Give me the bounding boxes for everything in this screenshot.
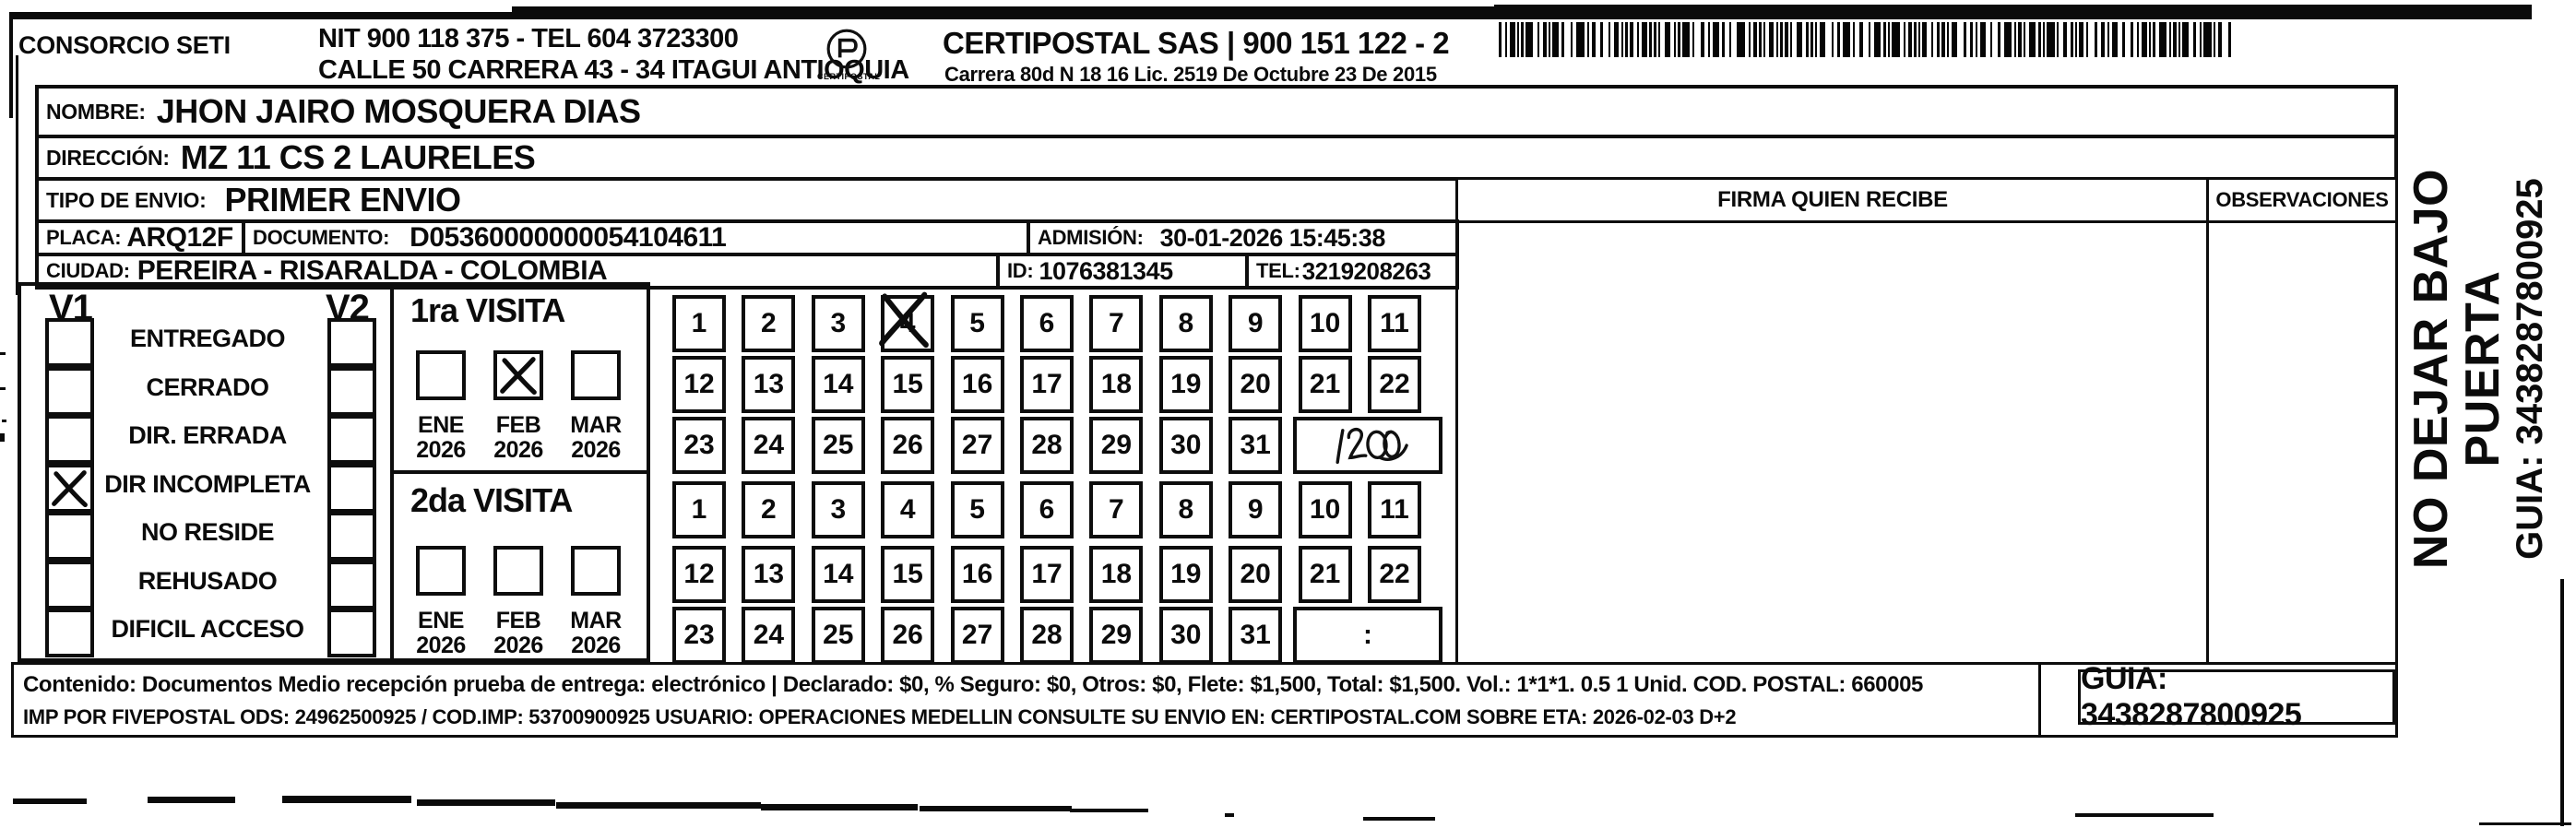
side-guia-text: GUIA: 3438287800925 <box>2509 83 2551 655</box>
visit1-day-10: 10 <box>1299 295 1352 352</box>
barcode-bar <box>1869 22 1870 57</box>
barcode-bar <box>1505 22 1507 57</box>
direccion-label: DIRECCIÓN: <box>39 146 170 171</box>
scan-artifact <box>0 433 5 442</box>
visit2-day-11: 11 <box>1368 481 1421 538</box>
visit1-day-11: 11 <box>1368 295 1421 352</box>
documento-value: D05360000000054104611 <box>410 222 726 254</box>
barcode-bar <box>1549 22 1550 57</box>
visit1-day-13: 13 <box>742 356 795 413</box>
barcode <box>1499 22 2237 57</box>
visit1-day-17: 17 <box>1020 356 1074 413</box>
row-direccion: DIRECCIÓN: MZ 11 CS 2 LAURELES <box>35 135 2398 181</box>
barcode-bar <box>1785 22 1788 57</box>
barcode-bar <box>1537 22 1539 57</box>
barcode-bar <box>1820 22 1825 57</box>
status-entregado-v2-checkbox <box>327 318 376 367</box>
visit1-day-14: 14 <box>812 356 865 413</box>
barcode-bar <box>1576 22 1585 57</box>
barcode-bar <box>2063 22 2067 57</box>
visit2-day-18: 18 <box>1089 546 1143 603</box>
barcode-bar <box>2029 22 2036 57</box>
side-warning-block: NO DEJAR BAJO PUERTA GUIA: 3438287800925 <box>2405 83 2507 655</box>
barcode-bar <box>2038 22 2041 57</box>
barcode-bar <box>1658 22 1660 57</box>
visit2-day-3: 3 <box>812 481 865 538</box>
barcode-bar <box>2075 22 2077 57</box>
barcode-bar <box>2112 22 2118 57</box>
visit1-day-18: 18 <box>1089 356 1143 413</box>
admision-value: 30-01-2026 15:45:38 <box>1160 224 1385 253</box>
visit1-day-20: 20 <box>1229 356 1282 413</box>
scan-artifact <box>761 804 918 810</box>
barcode-bar <box>1976 22 1977 57</box>
scan-artifact <box>2 420 6 422</box>
visit2-day-15: 15 <box>881 546 934 603</box>
barcode-bar <box>1642 22 1647 57</box>
visit1-panel: 1ra VISITA ENE2026FEB2026MAR2026 <box>390 282 650 474</box>
barcode-bar <box>1952 22 1957 57</box>
barcode-bar <box>2173 22 2177 57</box>
barcode-bar <box>1722 22 1725 57</box>
barcode-bar <box>2149 22 2151 57</box>
side-warning-text: NO DEJAR BAJO PUERTA <box>2405 83 2509 655</box>
visit2-day-16: 16 <box>951 546 1004 603</box>
barcode-bar <box>2095 22 2097 57</box>
barcode-bar <box>1753 22 1757 57</box>
visit2-month-ene-label: ENE2026 <box>403 609 479 658</box>
barcode-bar <box>1980 22 1986 57</box>
barcode-bar <box>2142 22 2147 57</box>
barcode-bar <box>1625 22 1628 57</box>
barcode-bar <box>2122 22 2125 57</box>
barcode-bar <box>2153 22 2155 57</box>
barcode-bar <box>2200 22 2202 57</box>
status-cerrado-label: CERRADO <box>91 367 324 408</box>
barcode-bar <box>1832 22 1834 57</box>
barcode-bar <box>1600 22 1603 57</box>
visit1-day-28: 28 <box>1020 417 1074 474</box>
status-no-reside-label: NO RESIDE <box>91 512 324 553</box>
barcode-bar <box>2203 22 2212 57</box>
barcode-bar <box>2137 22 2139 57</box>
visit1-day-8: 8 <box>1159 295 1213 352</box>
barcode-bar <box>1806 22 1809 57</box>
barcode-bar <box>1990 22 1992 57</box>
id-value: 1076381345 <box>1039 257 1172 286</box>
barcode-bar <box>1998 22 2000 57</box>
barcode-bar <box>1797 22 1802 57</box>
visit2-day-19: 19 <box>1159 546 1213 603</box>
status-dificil-acceso-v2-checkbox <box>327 609 376 657</box>
scan-artifact <box>148 797 235 803</box>
visit1-day-30: 30 <box>1159 417 1213 474</box>
visit2-day-29: 29 <box>1089 607 1143 664</box>
barcode-bar <box>1892 22 1900 57</box>
barcode-bar <box>1649 22 1652 57</box>
row-tipo-envio: TIPO DE ENVIO: PRIMER ENVIO <box>35 177 1459 223</box>
scan-artifact <box>1363 817 1435 821</box>
barcode-bar <box>1769 22 1774 57</box>
barcode-bar <box>1682 22 1690 57</box>
visit1-day-29: 29 <box>1089 417 1143 474</box>
visit1-day-16: 16 <box>951 356 1004 413</box>
visit2-day-24: 24 <box>742 607 795 664</box>
documento-label: DOCUMENTO: <box>245 226 389 250</box>
barcode-bar <box>1517 22 1519 57</box>
status-dir-errada-v1-checkbox <box>45 415 94 464</box>
guia-box-value: GUIA: 3438287800925 <box>2081 661 2392 733</box>
barcode-bar <box>1918 22 1920 57</box>
barcode-bar <box>1759 22 1762 57</box>
status-entregado-v1-checkbox <box>45 318 94 367</box>
barcode-bar <box>2047 22 2055 57</box>
barcode-bar <box>1561 22 1564 57</box>
visit2-day-28: 28 <box>1020 607 1074 664</box>
barcode-bar <box>1859 22 1863 57</box>
tipo-envio-value: PRIMER ENVIO <box>224 181 460 219</box>
barcode-bar <box>2004 22 2012 57</box>
barcode-bar <box>1853 22 1855 57</box>
barcode-bar <box>1654 22 1656 57</box>
status-dir-errada-v2-checkbox <box>327 415 376 464</box>
barcode-bar <box>2014 22 2016 57</box>
footer-line2: IMP POR FIVEPOSTAL ODS: 24962500925 / CO… <box>23 705 1736 729</box>
visit1-title: 1ra VISITA <box>410 291 564 330</box>
visit2-title: 2da VISITA <box>410 481 572 520</box>
visit2-day-26: 26 <box>881 607 934 664</box>
visit1-month-ene-checkbox <box>416 350 466 400</box>
visit1-time-box <box>1293 417 1442 474</box>
visit1-day-22: 22 <box>1368 356 1421 413</box>
barcode-bar <box>1904 22 1905 57</box>
barcode-bar <box>1874 22 1881 57</box>
barcode-bar <box>1815 22 1817 57</box>
barcode-bar <box>2131 22 2133 57</box>
barcode-bar <box>2018 22 2022 57</box>
barcode-bar <box>1729 22 1731 57</box>
barcode-bar <box>2057 22 2059 57</box>
visit1-month-mar-checkbox <box>571 350 621 400</box>
barcode-bar <box>1621 22 1623 57</box>
barcode-bar <box>1947 22 1949 57</box>
visit2-day-4: 4 <box>881 481 934 538</box>
barcode-bar <box>2169 22 2171 57</box>
visit1-day-19: 19 <box>1159 356 1213 413</box>
row-placa: PLACA: ARQ12F <box>35 219 245 256</box>
barcode-bar <box>1776 22 1778 57</box>
visit1-day-23: 23 <box>672 417 726 474</box>
visit1-day-21: 21 <box>1299 356 1352 413</box>
status-rehusado-v1-checkbox <box>45 561 94 609</box>
visit1-day-31: 31 <box>1229 417 1282 474</box>
guia-box: GUIA: 3438287800925 <box>2078 669 2395 725</box>
visit1-day-9: 9 <box>1229 295 1282 352</box>
scan-artifact <box>0 387 6 390</box>
visit2-day-12: 12 <box>672 546 726 603</box>
status-dificil-acceso-v1-checkbox <box>45 609 94 657</box>
visit1-month-ene: ENE2026 <box>403 350 479 463</box>
visit2-day-31: 31 <box>1229 607 1282 664</box>
visit2-month-ene: ENE2026 <box>403 546 479 658</box>
barcode-bar <box>2182 22 2189 57</box>
row-admision: ADMISIÓN: 30-01-2026 15:45:38 <box>1027 219 1459 256</box>
barcode-bar <box>2193 22 2196 57</box>
visit2-month-feb: FEB2026 <box>481 546 556 658</box>
barcode-bar <box>2086 22 2088 57</box>
barcode-bar <box>2159 22 2166 57</box>
id-label: ID: <box>1000 259 1033 283</box>
barcode-bar <box>1678 22 1680 57</box>
status-cerrado-v2-checkbox <box>327 367 376 416</box>
top-border-right <box>1494 5 2532 18</box>
status-rehusado-label: REHUSADO <box>91 561 324 602</box>
certipostal-logo-icon <box>825 28 868 70</box>
visit2-day-2: 2 <box>742 481 795 538</box>
barcode-bar <box>1701 22 1704 57</box>
visit1-day-1: 1 <box>672 295 726 352</box>
barcode-bar <box>1637 22 1639 57</box>
visit1-month-feb-checkbox <box>493 350 543 400</box>
barcode-bar <box>1888 22 1890 57</box>
barcode-bar <box>2043 22 2045 57</box>
admision-label: ADMISIÓN: <box>1030 226 1144 250</box>
barcode-bar <box>1552 22 1559 57</box>
ciudad-label: CIUDAD: <box>39 259 130 283</box>
status-panel: V1 V2 ENTREGADOCERRADODIR. ERRADADIR INC… <box>18 282 394 662</box>
visit2-day-10: 10 <box>1299 481 1352 538</box>
scan-artifact <box>1225 813 1234 817</box>
barcode-bar <box>2079 22 2083 57</box>
visit1-month-ene-label: ENE2026 <box>403 413 479 463</box>
visit1-day-6: 6 <box>1020 295 1074 352</box>
status-dir-errada-label: DIR. ERRADA <box>91 415 324 456</box>
visit1-day-15: 15 <box>881 356 934 413</box>
barcode-bar <box>2101 22 2105 57</box>
certipostal-logo: CERTIPOSTAL <box>817 28 876 81</box>
placa-value: ARQ12F <box>126 222 232 254</box>
barcode-bar <box>1908 22 1912 57</box>
barcode-bar <box>1883 22 1886 57</box>
scan-artifact <box>556 802 761 809</box>
barcode-bar <box>1708 22 1710 57</box>
visit1-day-25: 25 <box>812 417 865 474</box>
barcode-bar <box>2024 22 2025 57</box>
visit2-day-9: 9 <box>1229 481 1282 538</box>
visit2-day-23: 23 <box>672 607 726 664</box>
visit2-day-27: 27 <box>951 607 1004 664</box>
certipostal-logo-caption: CERTIPOSTAL <box>817 72 876 81</box>
barcode-bar <box>2071 22 2073 57</box>
status-no-reside-v2-checkbox <box>327 512 376 561</box>
license-line: Carrera 80d N 18 16 Lic. 2519 De Octubre… <box>944 63 1437 87</box>
visit1-day-4-cross-mark <box>874 287 933 351</box>
barcode-bar <box>1931 22 1933 57</box>
status-entregado-label: ENTREGADO <box>91 318 324 360</box>
barcode-bar <box>1692 22 1694 57</box>
left-edge-line-2 <box>16 55 18 295</box>
visit1-day-5: 5 <box>951 295 1004 352</box>
barcode-bar <box>2228 22 2231 57</box>
row-documento: DOCUMENTO: D05360000000054104611 <box>242 219 1030 256</box>
barcode-bar <box>1810 22 1813 57</box>
barcode-bar <box>1521 22 1524 57</box>
visit2-day-8: 8 <box>1159 481 1213 538</box>
shipping-label-scan: CONSORCIO SETI NIT 900 118 375 - TEL 604… <box>0 0 2576 828</box>
barcode-bar <box>1941 22 1945 57</box>
visit2-month-mar: MAR2026 <box>558 546 634 658</box>
footer-line1: Contenido: Documentos Medio recepción pr… <box>23 672 1923 698</box>
visit1-day-26: 26 <box>881 417 934 474</box>
visit1-day-27: 27 <box>951 417 1004 474</box>
visit2-day-13: 13 <box>742 546 795 603</box>
placa-label: PLACA: <box>39 226 121 250</box>
scan-artifact <box>1070 809 1148 812</box>
right-edge-line <box>2560 579 2564 826</box>
visit2-time-box: : <box>1293 607 1442 664</box>
visit2-day-1: 1 <box>672 481 726 538</box>
barcode-bar <box>1543 22 1547 57</box>
barcode-bar <box>1609 22 1610 57</box>
visit2-day-25: 25 <box>812 607 865 664</box>
direccion-value: MZ 11 CS 2 LAURELES <box>181 138 536 177</box>
observaciones-area <box>2206 219 2398 662</box>
barcode-bar <box>1749 22 1751 57</box>
visit1-day-12: 12 <box>672 356 726 413</box>
visit1-day-3: 3 <box>812 295 865 352</box>
tel-value: 3219208263 <box>1302 257 1431 286</box>
visit2-day-22: 22 <box>1368 546 1421 603</box>
barcode-bar <box>2214 22 2215 57</box>
scan-artifact <box>417 799 555 806</box>
visit2-day-grid: 1234567891011121314151617181920212223242… <box>650 470 1459 662</box>
left-edge-line <box>9 12 13 118</box>
barcode-bar <box>1571 22 1573 57</box>
visit1-day-2: 2 <box>742 295 795 352</box>
barcode-bar <box>1614 22 1619 57</box>
firma-signature-area <box>1455 219 2209 662</box>
barcode-bar <box>1922 22 1927 57</box>
barcode-bar <box>1780 22 1783 57</box>
visit2-month-mar-checkbox <box>571 546 621 596</box>
barcode-bar <box>1665 22 1670 57</box>
visit2-day-5: 5 <box>951 481 1004 538</box>
barcode-bar <box>1713 22 1719 57</box>
row-nombre: NOMBRE: JHON JAIRO MOSQUERA DIAS <box>35 85 2398 138</box>
visit1-day-grid: 1234567891011121314151617181920212223242… <box>650 282 1459 474</box>
visit2-day-21: 21 <box>1299 546 1352 603</box>
barcode-bar <box>1843 22 1850 57</box>
company-name: CONSORCIO SETI <box>18 31 231 60</box>
visit2-day-17: 17 <box>1020 546 1074 603</box>
scan-artifact <box>282 796 411 803</box>
company-nit: NIT 900 118 375 - TEL 604 3723300 <box>318 24 738 54</box>
visit2-day-6: 6 <box>1020 481 1074 538</box>
status-no-reside-v1-checkbox <box>45 512 94 561</box>
barcode-bar <box>1737 22 1745 57</box>
scan-artifact <box>13 798 87 804</box>
visit2-month-feb-checkbox <box>493 546 543 596</box>
barcode-bar <box>2178 22 2180 57</box>
barcode-bar <box>1914 22 1917 57</box>
status-dificil-acceso-label: DIFICIL ACCESO <box>91 609 324 650</box>
barcode-bar <box>2107 22 2109 57</box>
tel-label: TEL: <box>1249 259 1300 283</box>
barcode-bar <box>1674 22 1676 57</box>
visit1-month-feb: FEB2026 <box>481 350 556 463</box>
observaciones-column-header: OBSERVACIONES <box>2206 177 2398 223</box>
barcode-bar <box>1592 22 1596 57</box>
scan-artifact <box>920 806 1072 811</box>
barcode-bar <box>1587 22 1589 57</box>
nombre-label: NOMBRE: <box>39 100 146 124</box>
visit2-month-ene-checkbox <box>416 546 466 596</box>
footer-divider <box>2038 662 2041 738</box>
visit2-day-30: 30 <box>1159 607 1213 664</box>
barcode-bar <box>1937 22 1940 57</box>
status-dir-incompleta-label: DIR INCOMPLETA <box>91 464 324 505</box>
tipo-envio-label: TIPO DE ENVIO: <box>39 188 206 213</box>
barcode-bar <box>1525 22 1533 57</box>
barcode-bar <box>1499 22 1502 57</box>
visit2-month-feb-label: FEB2026 <box>481 609 556 658</box>
visit1-time-handwriting <box>1311 418 1424 473</box>
visit2-panel: 2da VISITA ENE2026FEB2026MAR2026 <box>390 470 650 662</box>
brand-line: CERTIPOSTAL SAS | 900 151 122 - 2 <box>943 26 1449 61</box>
barcode-bar <box>1790 22 1792 57</box>
visit2-day-20: 20 <box>1229 546 1282 603</box>
barcode-bar <box>2218 22 2222 57</box>
scan-artifact <box>2479 822 2571 825</box>
barcode-bar <box>1837 22 1840 57</box>
firma-column-header: FIRMA QUIEN RECIBE <box>1455 177 2210 223</box>
status-cerrado-v1-checkbox <box>45 367 94 416</box>
scan-artifact <box>0 352 6 355</box>
visit1-day-24: 24 <box>742 417 795 474</box>
visit2-month-mar-label: MAR2026 <box>558 609 634 658</box>
barcode-bar <box>1630 22 1633 57</box>
nombre-value: JHON JAIRO MOSQUERA DIAS <box>157 92 641 131</box>
visit2-day-7: 7 <box>1089 481 1143 538</box>
barcode-bar <box>1970 22 1973 57</box>
scan-artifact <box>2075 813 2214 817</box>
visit1-month-feb-label: FEB2026 <box>481 413 556 463</box>
visit2-day-14: 14 <box>812 546 865 603</box>
barcode-bar <box>1763 22 1765 57</box>
visit1-day-7: 7 <box>1089 295 1143 352</box>
barcode-bar <box>1964 22 1966 57</box>
status-dir-incompleta-v2-checkbox <box>327 464 376 513</box>
barcode-bar <box>1510 22 1515 57</box>
status-dir-incompleta-v1-checkbox <box>45 464 94 513</box>
visit1-month-mar-label: MAR2026 <box>558 413 634 463</box>
status-rehusado-v2-checkbox <box>327 561 376 609</box>
visit1-month-mar: MAR2026 <box>558 350 634 463</box>
